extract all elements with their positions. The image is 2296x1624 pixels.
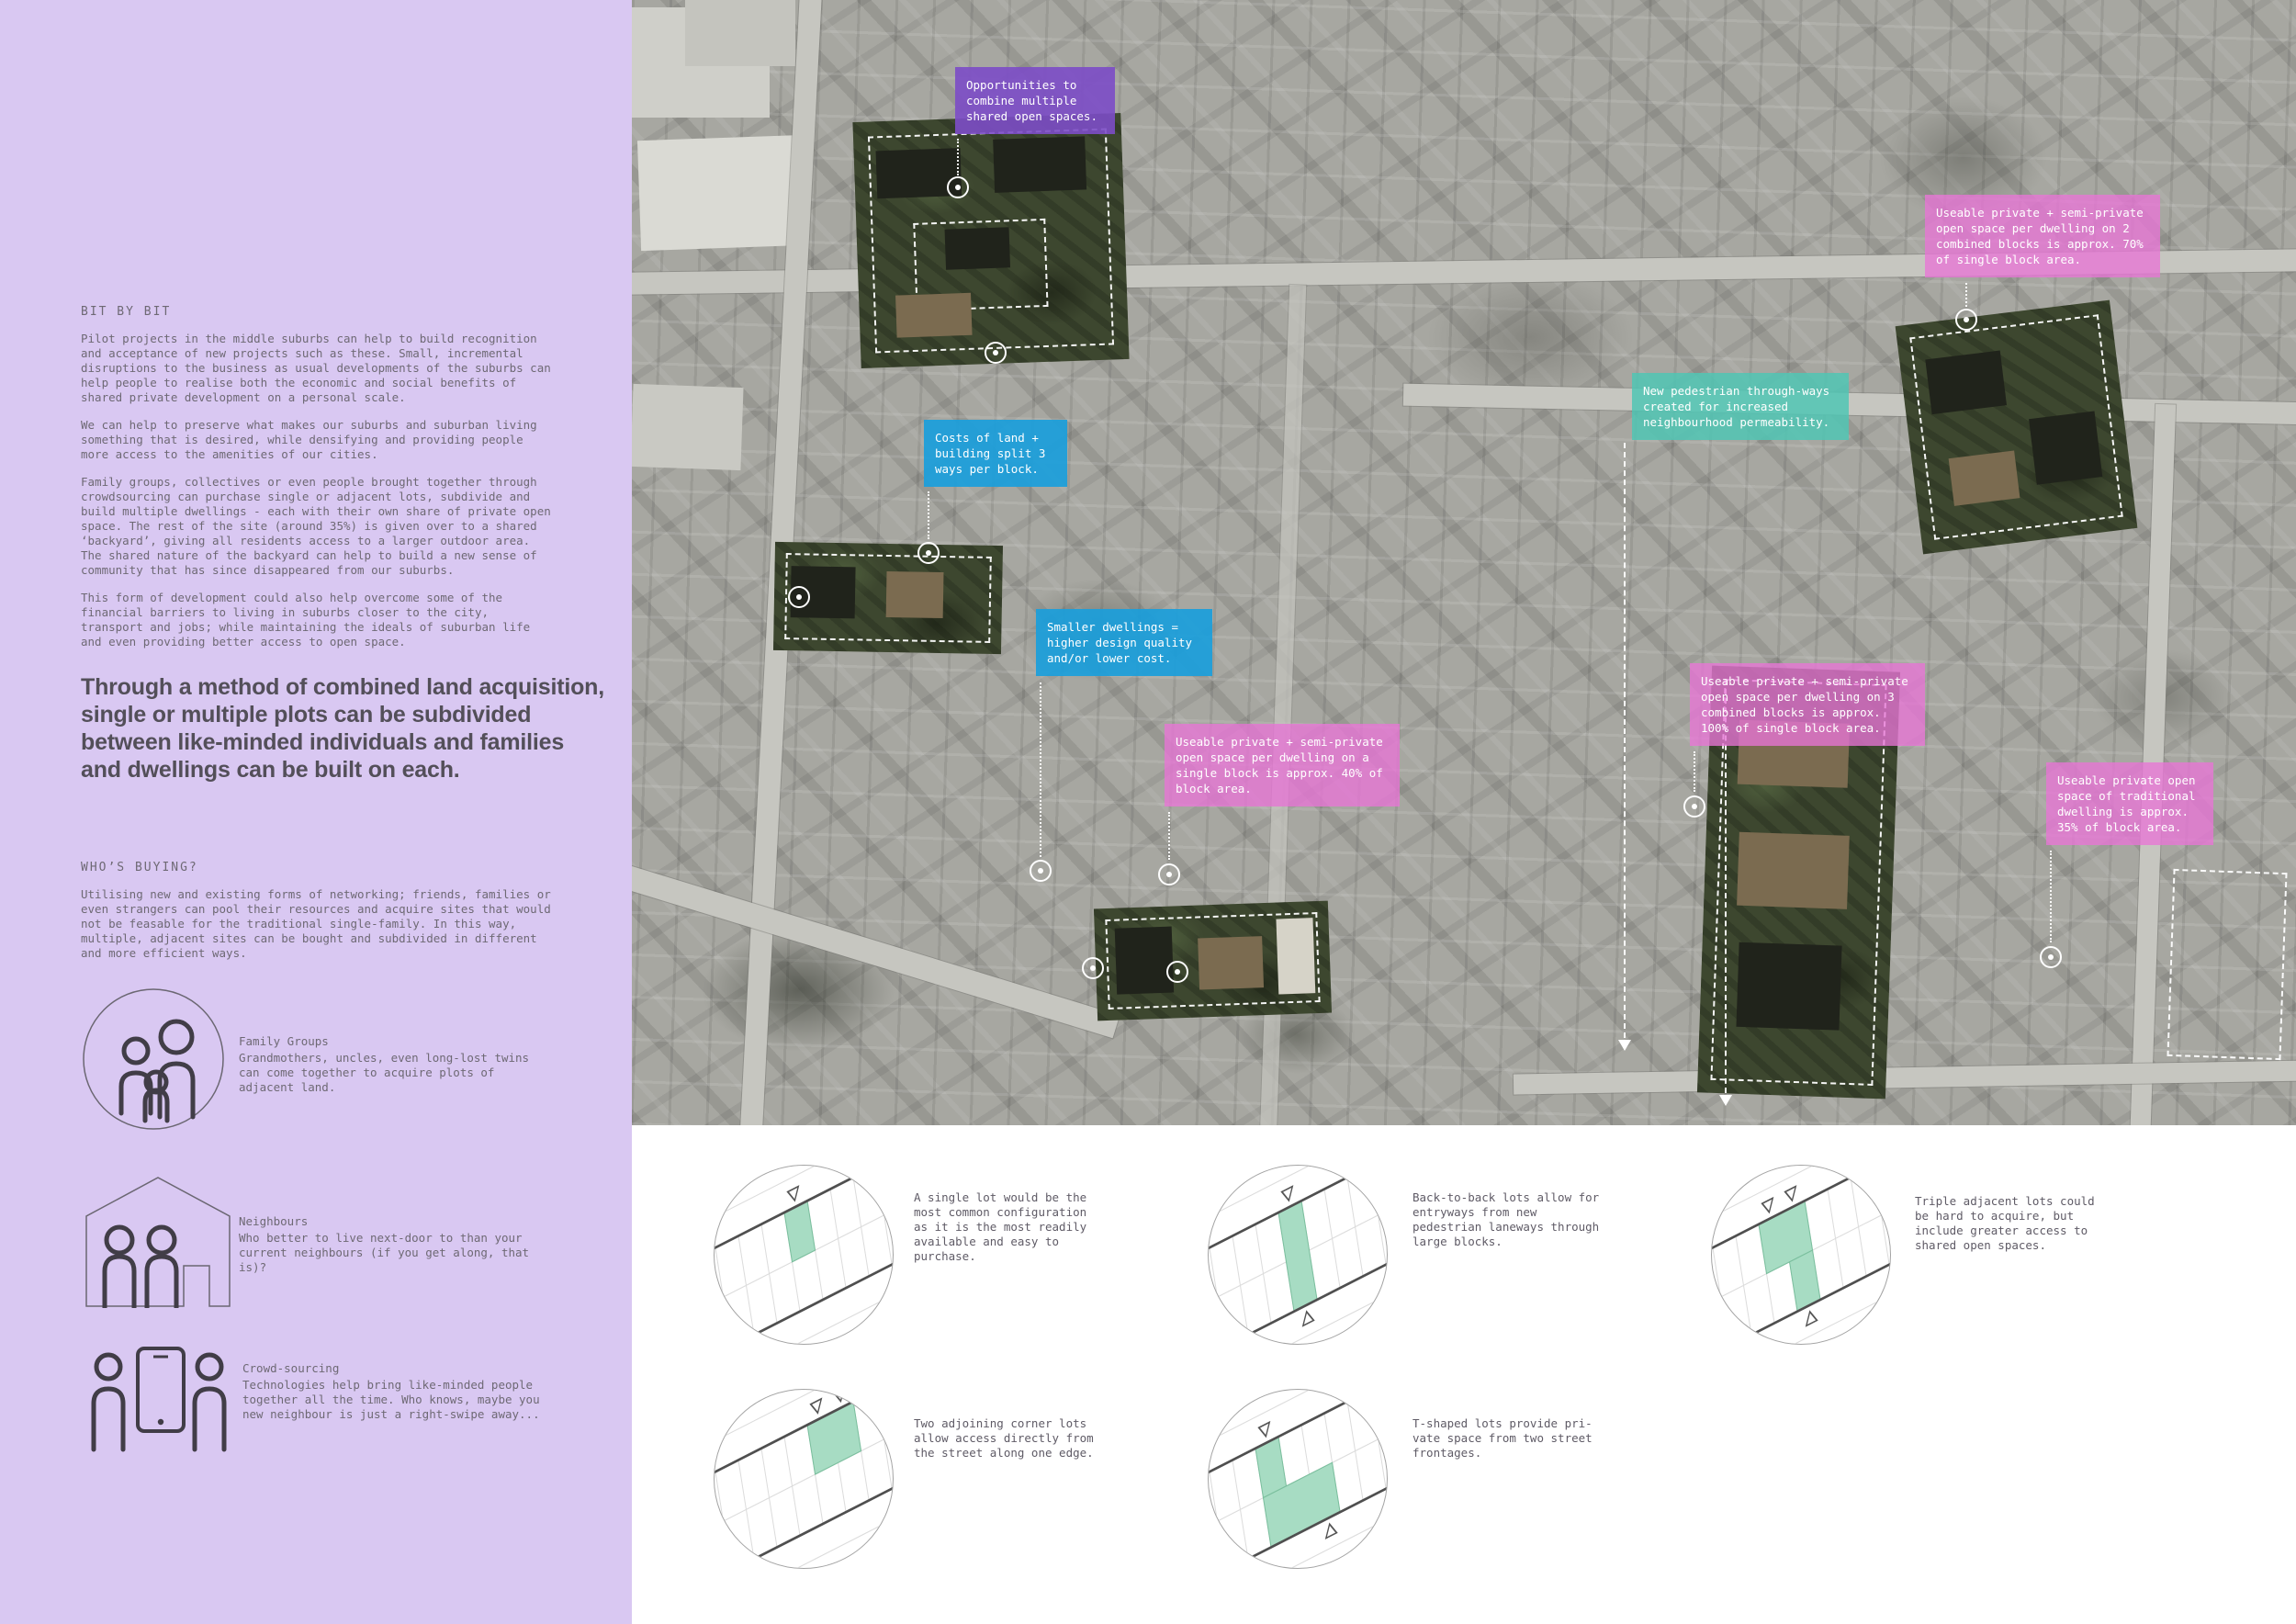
annotation-shared-open-spaces: Opportunities to combine multiple shared… — [955, 67, 1115, 134]
road — [632, 860, 1120, 1038]
development-site — [852, 113, 1129, 368]
annotation-smaller-dwellings: Smaller dwellings = higher design qualit… — [1036, 609, 1212, 676]
group-description: Technologies help bring like-minded peop… — [242, 1378, 546, 1422]
point-marker — [1082, 957, 1104, 979]
road — [1514, 1060, 2296, 1094]
neighbours-house-icon — [81, 1168, 235, 1312]
annotation-two-combined-blocks: Useable private + semi-private open spac… — [1925, 195, 2160, 277]
buyer-groups: Family Groups Grandmothers, uncles, even… — [81, 987, 632, 1457]
crowdsourcing-phone-icon — [81, 1345, 239, 1457]
annotation-costs-split: Costs of land + building split 3 ways pe… — [924, 420, 1067, 487]
poster-page: BIT BY BIT Pilot projects in the middle … — [0, 0, 2296, 1624]
aerial-map: Opportunities to combine multiple shared… — [632, 0, 2296, 1125]
leader-line — [957, 139, 959, 175]
paragraph: This form of development could also help… — [81, 591, 557, 649]
sidebar: BIT BY BIT Pilot projects in the middle … — [0, 0, 632, 1624]
roof-patch — [632, 384, 744, 470]
group-title: Crowd-sourcing — [242, 1361, 546, 1376]
annotation-pedestrian-throughways: New pedestrian through-ways created for … — [1632, 373, 1849, 440]
group-title: Family Groups — [239, 1034, 542, 1049]
roof-patch — [637, 135, 808, 251]
point-marker — [1158, 863, 1180, 885]
diagram-back-to-back-lots — [1208, 1165, 1388, 1345]
diagram-caption: Triple adjacent lots could be hard to ac… — [1915, 1194, 2112, 1253]
development-site — [1896, 300, 2138, 555]
leader-line — [1168, 812, 1170, 860]
roof-patch — [685, 0, 795, 66]
leader-line — [1040, 682, 1041, 857]
leader-line — [1694, 751, 1695, 792]
annotation-traditional-dwelling: Useable private open space of traditiona… — [2046, 762, 2213, 845]
point-marker — [985, 342, 1007, 364]
paragraph: Pilot projects in the middle suburbs can… — [81, 332, 557, 405]
group-description: Who better to live next-door to than you… — [239, 1231, 542, 1275]
diagram-caption: A single lot would be the most common co… — [914, 1190, 1102, 1264]
group-neighbours: Neighbours Who better to live next-door … — [81, 1168, 595, 1312]
section-heading-bit-by-bit: BIT BY BIT — [81, 305, 632, 319]
paragraph: Family groups, collectives or even peopl… — [81, 475, 557, 578]
diagram-caption: Back-to-back lots allow for entryways fr… — [1412, 1190, 1610, 1249]
group-crowdsourcing-text: Crowd-sourcing Technologies help bring l… — [242, 1345, 546, 1422]
point-marker — [2040, 946, 2062, 968]
diagram-triple-adjacent-lots — [1711, 1165, 1891, 1345]
annotation-single-block: Useable private + semi-private open spac… — [1165, 724, 1400, 806]
leader-line — [1965, 283, 1967, 307]
diagram-single-lot — [714, 1165, 894, 1345]
point-marker — [788, 586, 810, 608]
diagram-caption: Two adjoining corner lots allow access d… — [914, 1416, 1111, 1460]
diagram-t-shaped-lots — [1208, 1389, 1388, 1569]
annotation-three-combined-blocks: Useable private + semi-private open spac… — [1690, 663, 1925, 746]
leader-line — [2050, 851, 2052, 942]
headline: Through a method of combined land acquis… — [81, 673, 609, 784]
point-marker — [947, 176, 969, 198]
point-marker — [1030, 860, 1052, 882]
group-family-text: Family Groups Grandmothers, uncles, even… — [239, 987, 542, 1095]
group-title: Neighbours — [239, 1214, 542, 1229]
leader-line — [928, 491, 929, 539]
pedestrian-throughway-line — [1624, 443, 1626, 1038]
group-description: Grandmothers, uncles, even long-lost twi… — [239, 1051, 542, 1095]
arrow-down-icon — [1618, 1040, 1631, 1051]
point-marker — [1166, 961, 1188, 983]
family-group-icon — [81, 987, 235, 1135]
diagram-caption: T-shaped lots provide pri-vate space fro… — [1412, 1416, 1610, 1460]
group-crowdsourcing: Crowd-sourcing Technologies help bring l… — [81, 1345, 595, 1457]
point-marker — [1683, 795, 1705, 818]
group-family: Family Groups Grandmothers, uncles, even… — [81, 987, 595, 1135]
development-site — [1094, 901, 1332, 1021]
paragraph: Utilising new and existing forms of netw… — [81, 887, 557, 961]
point-marker — [1955, 309, 1977, 331]
section-heading-whos-buying: WHO’S BUYING? — [81, 861, 632, 874]
paragraph: We can help to preserve what makes our s… — [81, 418, 557, 462]
group-neighbours-text: Neighbours Who better to live next-door … — [239, 1168, 542, 1275]
diagram-corner-lots — [714, 1389, 894, 1569]
point-marker — [917, 542, 940, 564]
arrow-down-icon — [1719, 1095, 1732, 1106]
traditional-block-outline — [2167, 869, 2287, 1060]
